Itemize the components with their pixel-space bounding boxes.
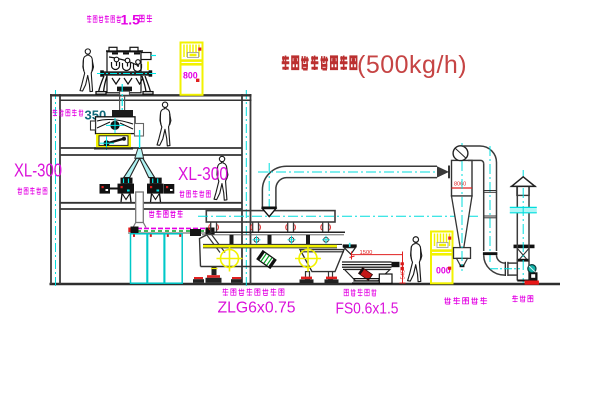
svg-text:1.5: 1.5	[121, 12, 141, 28]
svg-text:FS0.6x1.5: FS0.6x1.5	[336, 301, 399, 318]
svg-text:800: 800	[183, 71, 198, 81]
svg-text:XL-300: XL-300	[14, 161, 62, 181]
svg-text:XL-300: XL-300	[178, 164, 228, 184]
svg-text:545: 545	[401, 270, 407, 280]
svg-text:(500kg/h): (500kg/h)	[357, 51, 467, 79]
svg-text:1500: 1500	[360, 250, 373, 256]
svg-text:8060: 8060	[454, 182, 466, 188]
svg-text:ZLG6x0.75: ZLG6x0.75	[218, 300, 296, 317]
